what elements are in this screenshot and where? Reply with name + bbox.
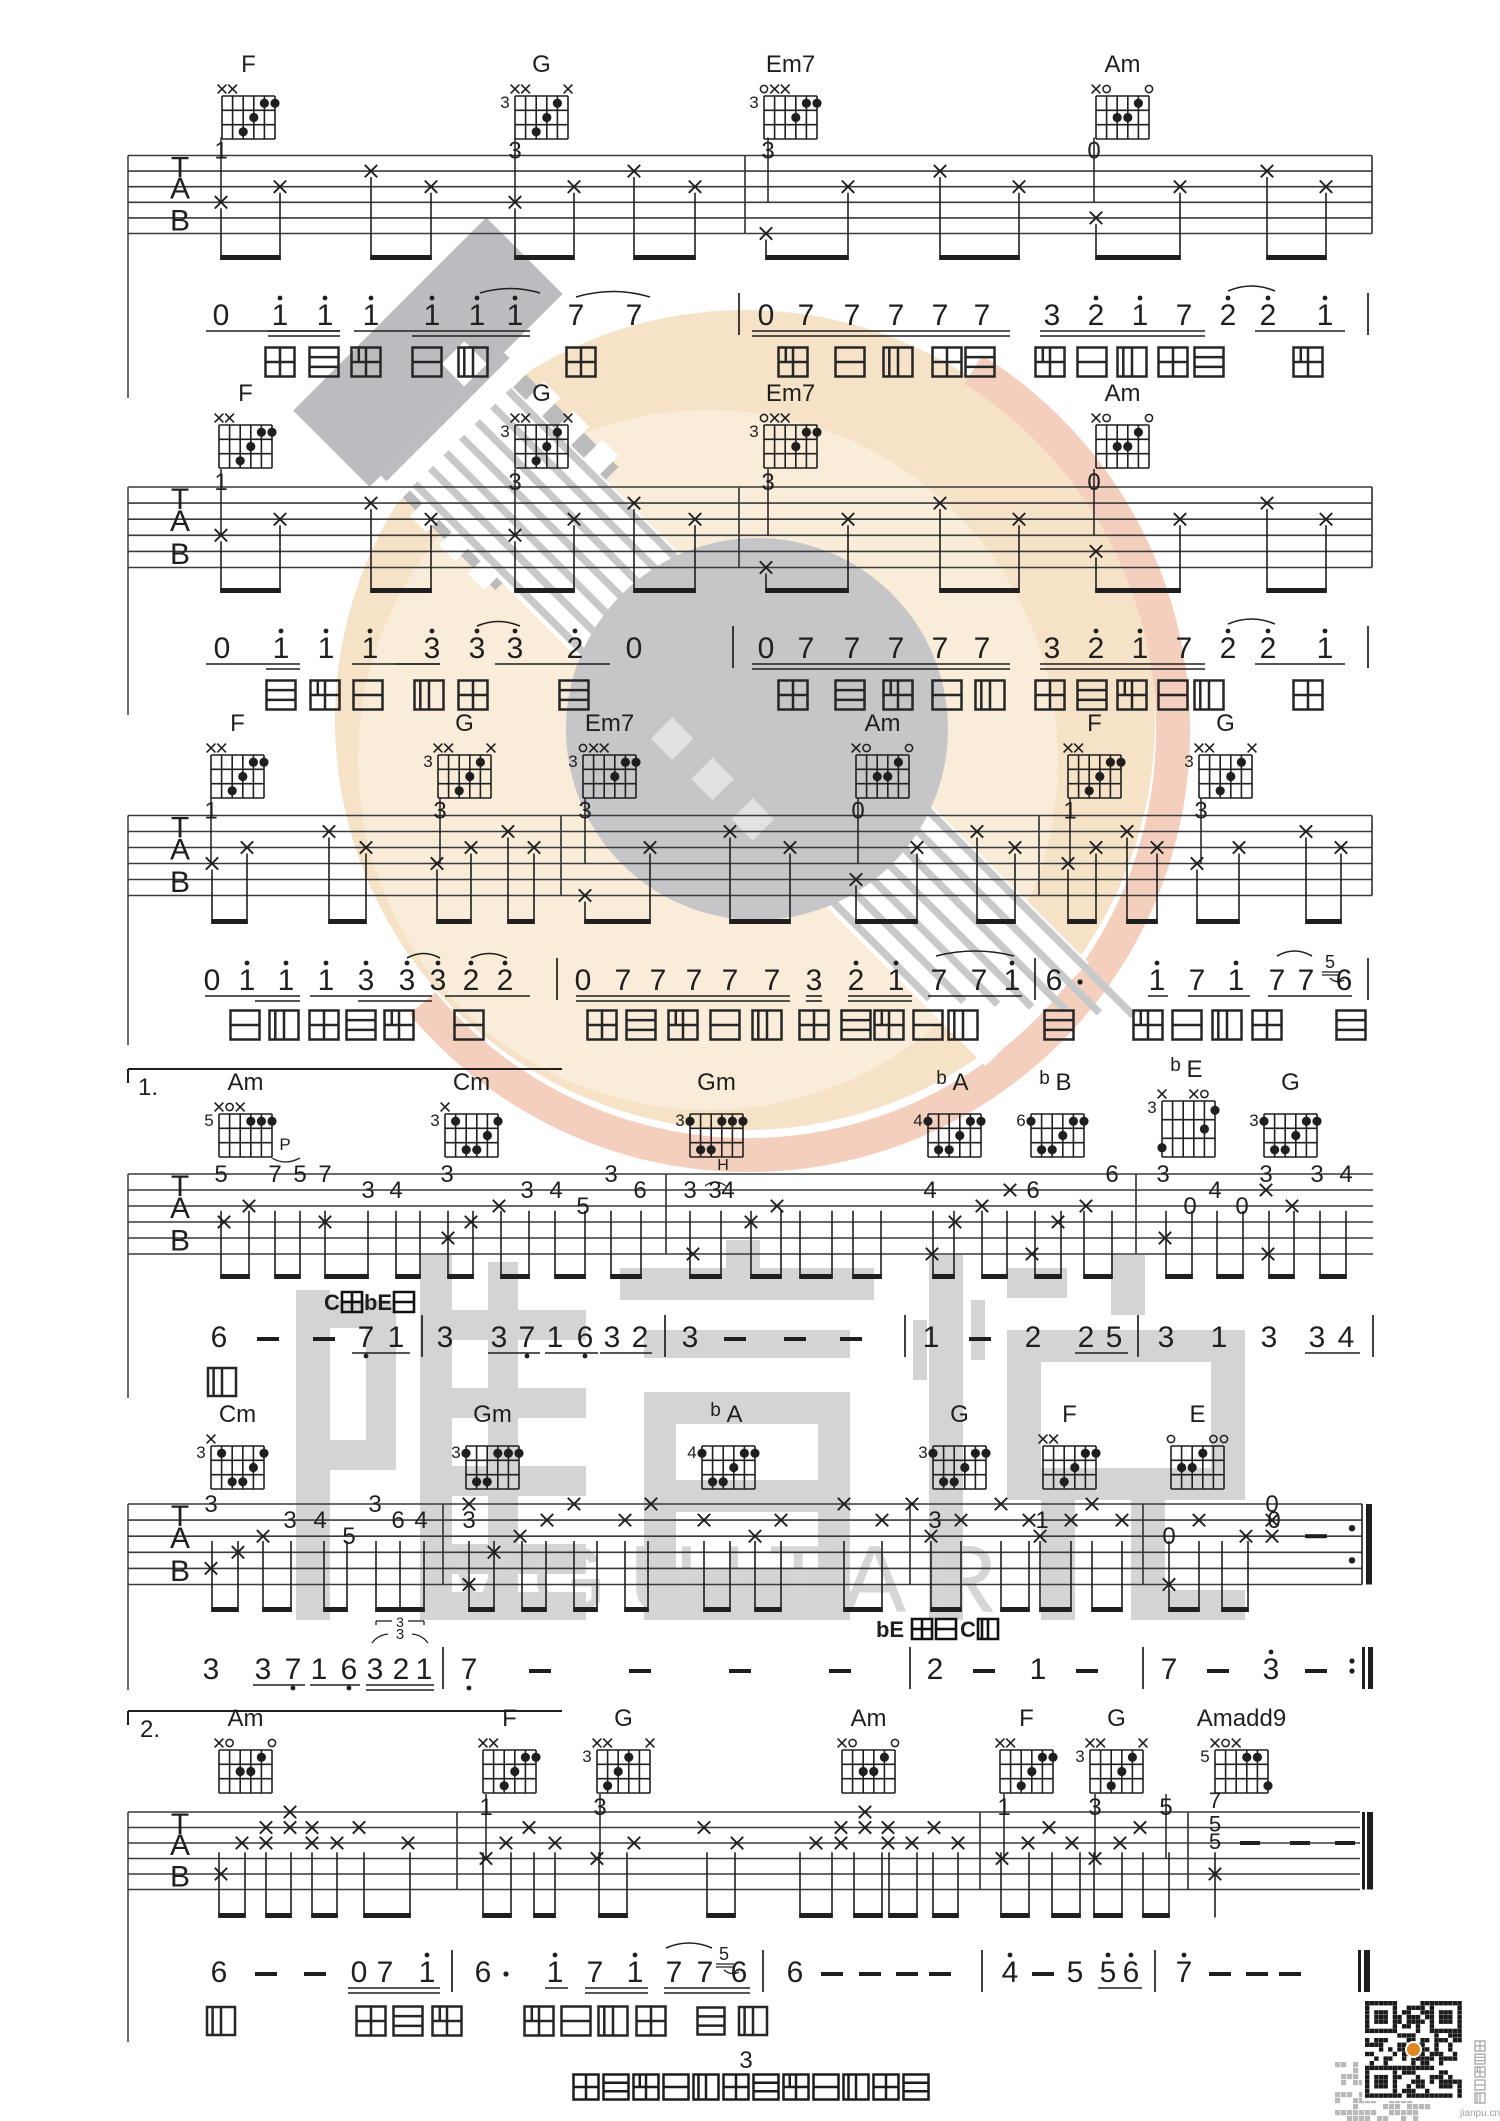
svg-text:3: 3 [1156,1161,1169,1188]
svg-text:1: 1 [923,1321,940,1354]
svg-text:3: 3 [708,1177,721,1204]
svg-text:Em7: Em7 [766,51,815,78]
svg-text:1: 1 [419,1956,436,1989]
svg-text:1: 1 [239,964,256,997]
svg-text:C: C [324,1290,340,1315]
svg-text:2: 2 [463,964,480,997]
svg-text:3: 3 [437,1321,454,1354]
svg-text:b: b [710,1400,721,1421]
svg-text:3: 3 [1044,299,1061,332]
svg-text:2: 2 [1260,632,1277,665]
svg-text:1: 1 [1132,299,1149,332]
svg-text:4: 4 [1339,1161,1352,1188]
svg-text:1: 1 [469,299,486,332]
svg-text:F: F [1019,1705,1034,1732]
svg-text:A: A [170,833,190,866]
svg-text:2: 2 [1088,632,1105,665]
svg-text:5: 5 [576,1193,589,1220]
svg-text:jianpu.cn: jianpu.cn [1459,2108,1500,2119]
svg-text:4: 4 [313,1507,326,1534]
svg-text:6: 6 [211,1956,228,1989]
svg-text:7: 7 [1298,964,1315,997]
svg-text:7: 7 [666,1956,683,1989]
svg-text:2: 2 [1220,299,1237,332]
svg-text:3: 3 [749,93,758,112]
svg-text:5: 5 [1106,1321,1123,1354]
svg-text:7: 7 [1269,964,1286,997]
svg-text:6: 6 [475,1956,492,1989]
svg-text:7: 7 [318,1161,331,1188]
svg-text:5: 5 [719,1944,729,1964]
svg-text:1: 1 [1030,1653,1047,1686]
svg-text:7: 7 [1209,1788,1221,1813]
svg-text:1: 1 [1149,964,1166,997]
svg-text:5: 5 [1325,952,1335,972]
svg-text:7: 7 [1161,1653,1178,1686]
svg-text:Am: Am [228,1705,264,1732]
svg-text:5: 5 [1209,1829,1221,1854]
svg-text:3: 3 [440,1161,453,1188]
svg-text:F: F [1087,710,1102,737]
svg-text:2: 2 [567,632,584,665]
svg-text:6: 6 [1105,1161,1118,1188]
svg-text:B: B [1055,1069,1071,1096]
svg-text:3: 3 [582,1747,591,1766]
svg-text:6: 6 [1016,1111,1025,1130]
svg-text:4: 4 [1208,1177,1221,1204]
svg-text:3: 3 [424,632,441,665]
svg-text:A: A [726,1401,742,1428]
svg-text:5: 5 [293,1161,306,1188]
svg-text:7: 7 [974,632,991,665]
svg-text:1: 1 [1228,964,1245,997]
svg-text:3: 3 [430,964,447,997]
svg-text:b: b [936,1068,947,1089]
svg-text:7: 7 [626,299,643,332]
svg-text:1: 1 [1004,964,1021,997]
svg-text:7: 7 [932,632,949,665]
svg-text:4: 4 [1002,1956,1019,1989]
svg-text:1.: 1. [138,1074,158,1101]
svg-text:2: 2 [1078,1321,1095,1354]
svg-text:7: 7 [568,299,585,332]
svg-text:7: 7 [931,964,948,997]
svg-text:0: 0 [575,964,592,997]
svg-text:5: 5 [214,1161,227,1188]
svg-text:4: 4 [549,1177,562,1204]
svg-text:3: 3 [1184,752,1193,771]
svg-text:7: 7 [888,632,905,665]
svg-text:G: G [532,380,551,407]
svg-text:7: 7 [844,632,861,665]
svg-text:3: 3 [1044,632,1061,665]
svg-text:0: 0 [626,632,643,665]
svg-text:4: 4 [913,1111,922,1130]
svg-text:1: 1 [507,299,524,332]
svg-text:P: P [279,1135,290,1154]
svg-text:B: B [170,205,190,238]
svg-text:7: 7 [461,1653,478,1686]
svg-text:5: 5 [1067,1956,1084,1989]
svg-text:2: 2 [1088,299,1105,332]
svg-text:A: A [170,1829,190,1862]
svg-text:3: 3 [451,1443,460,1462]
svg-text:B: B [170,538,190,571]
svg-text:3: 3 [399,964,416,997]
svg-text:6: 6 [211,1321,228,1354]
svg-text:3: 3 [918,1443,927,1462]
svg-text:0: 0 [1162,1523,1175,1550]
svg-text:G: G [1107,1705,1126,1732]
svg-text:1: 1 [888,964,905,997]
svg-text:F: F [1062,1401,1077,1428]
svg-text:F: F [238,380,253,407]
svg-text:1: 1 [311,1653,328,1686]
svg-text:3: 3 [1075,1747,1084,1766]
svg-text:3: 3 [462,1507,475,1534]
svg-text:A: A [170,505,190,538]
svg-text:B: B [170,1861,190,1894]
svg-text:Am: Am [1105,380,1141,407]
svg-text:3: 3 [500,422,509,441]
svg-text:1: 1 [1317,632,1334,665]
svg-text:G: G [614,1705,633,1732]
svg-text:5: 5 [204,1111,213,1130]
svg-text:7: 7 [1176,299,1193,332]
svg-text:0: 0 [1235,1193,1248,1220]
svg-text:1: 1 [363,299,380,332]
svg-text:3: 3 [361,1177,374,1204]
svg-text:0: 0 [213,299,230,332]
svg-text:6: 6 [341,1653,358,1686]
svg-text:B: B [170,866,190,899]
svg-text:2.: 2. [140,1716,160,1743]
svg-text:Cm: Cm [219,1401,256,1428]
svg-text:Am: Am [1105,51,1141,78]
svg-text:7: 7 [1189,964,1206,997]
svg-text:3: 3 [491,1321,508,1354]
svg-text:3: 3 [1147,1098,1156,1117]
svg-text:F: F [241,51,256,78]
svg-text:Em7: Em7 [766,380,815,407]
svg-text:b: b [1170,1055,1181,1076]
svg-text:3: 3 [1158,1321,1175,1354]
svg-text:Gm: Gm [697,1069,736,1096]
svg-text:4: 4 [1338,1321,1355,1354]
svg-text:7: 7 [285,1653,302,1686]
svg-text:Amadd9: Amadd9 [1197,1705,1286,1732]
svg-text:1: 1 [1317,299,1334,332]
svg-text:4: 4 [923,1177,936,1204]
svg-text:1: 1 [1211,1321,1228,1354]
svg-text:6: 6 [633,1177,646,1204]
svg-text:7: 7 [974,299,991,332]
svg-text:1: 1 [1035,1507,1048,1534]
svg-text:6: 6 [1123,1956,1140,1989]
svg-text:4: 4 [389,1177,402,1204]
svg-text:7: 7 [932,299,949,332]
svg-text:7: 7 [377,1956,394,1989]
svg-text:0: 0 [351,1956,368,1989]
svg-text:1: 1 [278,964,295,997]
svg-text:3: 3 [396,1626,404,1643]
svg-text:3: 3 [358,964,375,997]
svg-text:7: 7 [615,964,632,997]
svg-text:3: 3 [749,422,758,441]
svg-text:4: 4 [414,1507,427,1534]
svg-text:B: B [170,1225,190,1258]
svg-text:1: 1 [317,299,334,332]
svg-text:0: 0 [1267,1507,1280,1534]
svg-text:1: 1 [273,632,290,665]
svg-text:7: 7 [764,964,781,997]
svg-text:3: 3 [507,632,524,665]
svg-text:3: 3 [1261,1321,1278,1354]
svg-text:0: 0 [758,299,775,332]
svg-text:7: 7 [971,964,988,997]
svg-text:3: 3 [500,93,509,112]
svg-text:3: 3 [928,1507,941,1534]
svg-text:Am: Am [228,1069,264,1096]
svg-text:4: 4 [721,1177,734,1204]
svg-text:B: B [170,1555,190,1588]
svg-text:7: 7 [798,299,815,332]
svg-text:3: 3 [604,1321,621,1354]
svg-text:Cm: Cm [453,1069,490,1096]
svg-text:7: 7 [722,964,739,997]
svg-text:5: 5 [1200,1747,1209,1766]
svg-text:3: 3 [203,1653,220,1686]
svg-text:7: 7 [268,1161,281,1188]
svg-text:Gm: Gm [473,1401,512,1428]
svg-text:7: 7 [587,1956,604,1989]
svg-text:2: 2 [927,1653,944,1686]
svg-text:Am: Am [865,710,901,737]
svg-text:F: F [502,1705,517,1732]
svg-text:A: A [952,1069,968,1096]
svg-text:A: A [170,1522,190,1555]
svg-text:7: 7 [519,1321,536,1354]
svg-text:3: 3 [283,1507,296,1534]
svg-text:G: G [532,51,551,78]
svg-text:3: 3 [675,1111,684,1130]
svg-text:5: 5 [1100,1956,1117,1989]
svg-text:3: 3 [255,1653,272,1686]
svg-text:E: E [1186,1056,1202,1083]
svg-text:G: G [1216,710,1235,737]
svg-text:G: G [1281,1069,1300,1096]
svg-text:C: C [960,1617,976,1642]
svg-text:3: 3 [1249,1111,1258,1130]
svg-text:7: 7 [888,299,905,332]
svg-text:6: 6 [391,1507,404,1534]
svg-text:7: 7 [1176,1956,1193,1989]
svg-text:2: 2 [393,1653,410,1686]
svg-text:G: G [950,1401,969,1428]
svg-text:1: 1 [388,1321,405,1354]
svg-text:6: 6 [1046,964,1063,997]
svg-text:2: 2 [497,964,514,997]
svg-text:7: 7 [686,964,703,997]
svg-text:4: 4 [687,1443,696,1462]
svg-text:3: 3 [568,752,577,771]
svg-text:3: 3 [423,752,432,771]
svg-text:3: 3 [1310,1161,1323,1188]
svg-text:7: 7 [650,964,667,997]
svg-text:Em7: Em7 [585,710,634,737]
svg-text:E: E [1189,1401,1205,1428]
svg-text:0: 0 [1183,1193,1196,1220]
svg-text:3: 3 [204,1491,217,1518]
svg-text:3: 3 [683,1177,696,1204]
svg-text:1: 1 [547,1321,564,1354]
svg-text:7: 7 [798,632,815,665]
svg-text:3: 3 [604,1161,617,1188]
svg-text:0: 0 [204,964,221,997]
svg-text:3: 3 [368,1491,381,1518]
svg-text:7: 7 [697,1956,714,1989]
svg-text:H: H [717,1157,729,1174]
svg-text:bE: bE [364,1290,392,1315]
svg-text:3: 3 [520,1177,533,1204]
svg-text:3: 3 [1263,1653,1280,1686]
svg-text:3: 3 [1259,1161,1272,1188]
svg-text:6: 6 [787,1956,804,1989]
svg-text:1: 1 [362,632,379,665]
svg-text:3: 3 [367,1653,384,1686]
svg-text:2: 2 [1260,299,1277,332]
svg-text:1: 1 [424,299,441,332]
svg-text:7: 7 [1176,632,1193,665]
svg-text:7: 7 [844,299,861,332]
svg-text:1: 1 [318,964,335,997]
svg-text:1: 1 [416,1653,433,1686]
svg-text:3: 3 [196,1443,205,1462]
svg-text:2: 2 [1025,1321,1042,1354]
svg-text:0: 0 [758,632,775,665]
svg-text:6: 6 [1026,1177,1039,1204]
svg-text:A: A [170,1192,190,1225]
svg-text:7: 7 [358,1321,375,1354]
svg-text:G: G [455,710,474,737]
svg-text:3: 3 [1309,1321,1326,1354]
svg-text:3: 3 [806,964,823,997]
svg-text:1: 1 [318,632,335,665]
svg-text:1: 1 [547,1956,564,1989]
svg-text:3: 3 [682,1321,699,1354]
svg-text:3: 3 [430,1111,439,1130]
svg-text:VGUITAR: VGUITAR [446,1526,1020,1633]
svg-text:2: 2 [632,1321,649,1354]
svg-text:3: 3 [469,632,486,665]
svg-text:5: 5 [342,1523,355,1550]
svg-text:Am: Am [851,1705,887,1732]
svg-text:1: 1 [627,1956,644,1989]
svg-text:2: 2 [1220,632,1237,665]
svg-text:6: 6 [577,1321,594,1354]
svg-text:A: A [170,173,190,206]
svg-text:bE: bE [876,1617,904,1642]
svg-text:0: 0 [214,632,231,665]
svg-text:F: F [230,710,245,737]
svg-text:1: 1 [1132,632,1149,665]
svg-text:1: 1 [272,299,289,332]
svg-text:b: b [1039,1068,1050,1089]
svg-text:2: 2 [848,964,865,997]
svg-text:3: 3 [739,2047,752,2074]
